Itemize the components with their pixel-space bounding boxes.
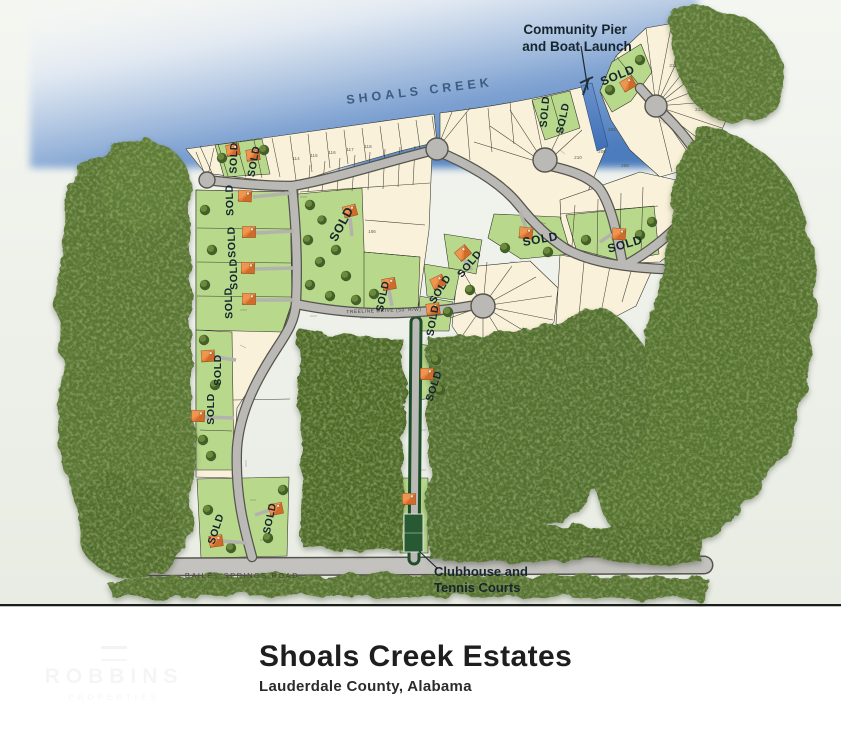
lot-number: 206: [598, 149, 606, 154]
house-icon: [191, 410, 204, 421]
clubhouse-label: Clubhouse and Tennis Courts: [434, 564, 532, 595]
lot-number: 156: [368, 229, 376, 234]
sold-label: SOLD: [227, 142, 240, 174]
pier-label-line1: Community Pier: [523, 22, 627, 37]
sold-label: SOLD: [212, 354, 224, 386]
lot-number: 212: [689, 79, 697, 84]
watermark-logo: [101, 646, 127, 661]
house-icon: [243, 294, 256, 305]
lot-number: 116: [328, 150, 336, 155]
sold-label: SOLD: [205, 393, 217, 425]
house-icon: [241, 262, 254, 273]
lot-number: 204: [608, 127, 616, 132]
house-icon: [243, 227, 256, 238]
site-map: SOLD SOLD SOLD SOLD SOLD SOLD SOLD SOLD …: [0, 0, 841, 607]
clubhouse-label-line1: Clubhouse and: [434, 564, 528, 579]
house-icon: [238, 190, 252, 202]
lot-number: 211: [669, 63, 677, 68]
page-title: Shoals Creek Estates: [259, 640, 572, 674]
sold-label: SOLD: [227, 258, 240, 290]
lot-number: 115: [310, 153, 318, 158]
clubhouse-label-line2: Tennis Courts: [434, 580, 520, 595]
lot-number: 213: [695, 107, 703, 112]
lot-number: 210: [574, 155, 582, 160]
page-subtitle: Lauderdale County, Alabama: [259, 678, 572, 695]
lot-number: 114: [292, 156, 300, 161]
watermark-line2: PROPERTIES: [34, 693, 194, 702]
bailey-road-label: BAILEY SPRINGS ROAD: [185, 571, 299, 580]
map-bottom-border: [0, 604, 841, 606]
lot-number: 118: [364, 144, 372, 149]
lot-number: 117: [346, 147, 354, 152]
lot-number: 216: [703, 135, 711, 140]
site-map-svg: SOLD SOLD SOLD SOLD SOLD SOLD SOLD SOLD …: [0, 0, 841, 607]
sold-label: SOLD: [225, 226, 238, 258]
title-block: Shoals Creek Estates Lauderdale County, …: [259, 640, 572, 695]
watermark-line1: ROBBINS: [34, 665, 194, 689]
sold-label: SOLD: [222, 287, 235, 319]
pier-label-line2: and Boat Launch: [522, 39, 632, 54]
house-icon: [403, 494, 416, 505]
watermark: ROBBINS PROPERTIES: [34, 646, 194, 702]
sold-label: SOLD: [223, 184, 236, 216]
lot-number: 208: [621, 163, 629, 168]
tennis-court: [404, 514, 423, 552]
